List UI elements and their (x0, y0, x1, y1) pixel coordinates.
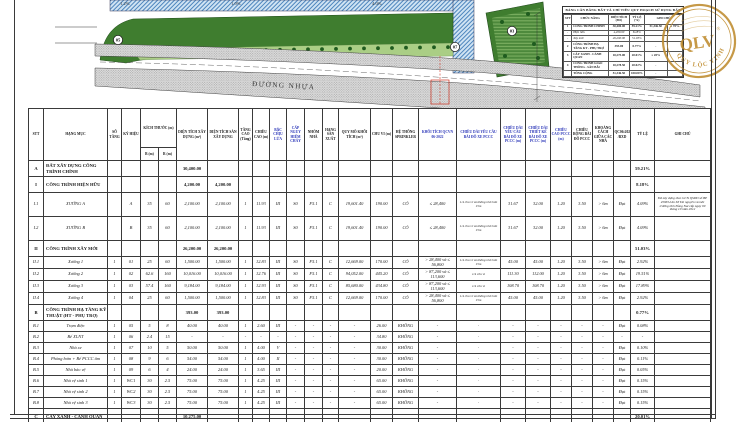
table-cell: KHÔNG (393, 332, 419, 343)
table-cell (122, 409, 141, 422)
table-cell: - (305, 354, 323, 365)
table-cell: 17.89% (631, 281, 655, 293)
table-cell (655, 376, 711, 387)
table-cell: KHÔNG (393, 365, 419, 376)
table-cell: Đạt (614, 269, 631, 281)
table-cell: 1 (108, 321, 122, 332)
land-balance-cell: 20.01% (629, 52, 644, 62)
table-cell: III (270, 321, 287, 332)
land-balance-cell: CÔNG TRÌNH GIAO THÔNG - SÂN BÃI (572, 61, 609, 71)
table-cell (457, 241, 501, 257)
col-cd-yeu-cau-rule: CHIỀU DÀI YÊU CẦU BÃI ĐỖ XE PCCC (457, 109, 501, 161)
table-cell: 10 (141, 343, 159, 354)
table-cell: - (551, 332, 572, 343)
table-cell: - (287, 365, 305, 376)
table-cell: 04 (122, 293, 141, 305)
table-cell: 1 (239, 376, 253, 387)
table-cell: 1.20 (551, 193, 572, 217)
table-cell: - (593, 321, 614, 332)
table-cell: 6 (159, 354, 177, 365)
table-cell: - (305, 321, 323, 332)
table-row: B.5Nhà bảo vệ1096424.0024.0013.65III----… (29, 365, 711, 376)
table-cell: 75.00 (177, 387, 208, 398)
table-cell: 26,200.00 (177, 241, 208, 257)
table-cell: - (287, 376, 305, 387)
table-cell: 2.5 (159, 376, 177, 387)
table-cell: Nhà vệ sinh 3 (44, 398, 108, 409)
table-row: AĐẤT XÂY DỰNG CÔNG TRÌNH CHÍNH30,400.005… (29, 161, 711, 177)
table-cell: II.4 (29, 293, 44, 305)
table-cell: 2,100.00 (177, 193, 208, 217)
table-cell (253, 161, 270, 177)
mini-col-ty-le: TỶ LỆ (%) (629, 15, 644, 25)
table-cell (501, 409, 526, 422)
land-balance-cell (667, 42, 682, 52)
table-cell (655, 293, 711, 305)
table-cell: - (572, 365, 593, 376)
sheet-frame-bottom-outer (10, 414, 716, 415)
table-cell (419, 305, 457, 321)
mini-col-ghi-chu: GHI CHÚ (645, 15, 683, 25)
table-cell (551, 241, 572, 257)
table-cell: 1 (108, 293, 122, 305)
table-cell: 32.00 (526, 217, 551, 241)
table-row: II.2Xưởng 210262.616010,016.0010,016.001… (29, 269, 711, 281)
table-cell: 65.00 (371, 398, 393, 409)
table-cell: - (526, 376, 551, 387)
table-cell: 45.00 (501, 257, 526, 269)
table-cell: III (270, 217, 287, 241)
table-cell (270, 177, 287, 193)
table-cell: - (287, 332, 305, 343)
table-cell: - (593, 376, 614, 387)
table-cell: - (457, 365, 501, 376)
land-balance-cell (667, 61, 682, 71)
table-cell: C (323, 269, 339, 281)
col-cd-thiet-ke: CHIỀU DÀI THIẾT KẾ BÃI ĐỖ XE PCCC (m) (526, 109, 551, 161)
table-cell: B.5 (29, 365, 44, 376)
table-cell (253, 305, 270, 321)
table-cell: - (501, 376, 526, 387)
col-stt: STT (29, 109, 44, 161)
table-cell: > 87,200 và ≤ 113,600 (419, 269, 457, 281)
table-cell: - (501, 398, 526, 409)
table-cell: - (572, 321, 593, 332)
table-cell (393, 409, 419, 422)
table-cell: 50.00 (208, 343, 239, 354)
table-cell: I.2 (29, 217, 44, 241)
table-cell: 02 (122, 269, 141, 281)
table-cell: C (323, 281, 339, 293)
col-nhom-nha: NHÓM NHÀ (305, 109, 323, 161)
table-cell: S0 (287, 217, 305, 241)
svg-text:05: 05 (116, 38, 121, 43)
table-cell: - (419, 332, 457, 343)
col-ky-hieu: KÝ HIỆU (122, 109, 141, 161)
table-cell: 1 (108, 269, 122, 281)
table-cell (239, 161, 253, 177)
table-cell: 75.00 (177, 376, 208, 387)
table-cell: 30,400.00 (177, 161, 208, 177)
table-cell (270, 409, 287, 422)
table-cell: - (457, 376, 501, 387)
table-cell: - (593, 343, 614, 354)
table-cell (457, 177, 501, 193)
table-cell: A (29, 161, 44, 177)
table-cell: B.4 (29, 354, 44, 365)
table-cell: F5.1 (305, 257, 323, 269)
table-cell: I.1 (29, 193, 44, 217)
col-dt-san: DIỆN TÍCH SÀN XÂY DỰNG (208, 109, 239, 161)
table-cell: 60 (159, 217, 177, 241)
table-cell: S0 (287, 193, 305, 217)
table-cell: - (305, 398, 323, 409)
table-cell: 1 (239, 321, 253, 332)
table-cell: CÔNG TRÌNH HẠ TẦNG KỸ THUẬT (HT - PHỤ TR… (44, 305, 108, 321)
table-cell (141, 161, 159, 177)
table-cell (339, 177, 371, 193)
table-cell: 24.00 (208, 365, 239, 376)
table-cell: 1 (239, 365, 253, 376)
table-cell (159, 305, 177, 321)
table-cell: - (572, 343, 593, 354)
table-cell (655, 281, 711, 293)
table-cell: Đạt (614, 281, 631, 293)
table-cell: CÓ (393, 269, 419, 281)
table-cell (572, 177, 593, 193)
table-cell: 12.83 (253, 293, 270, 305)
table-cell (253, 177, 270, 193)
table-cell: 1 (108, 387, 122, 398)
table-cell: Trạm điện (44, 321, 108, 332)
table-cell: 9 (141, 354, 159, 365)
land-balance-row: TỔNG CỘNG51,346.50100.00%- (564, 71, 683, 77)
table-cell: F5.1 (305, 193, 323, 217)
table-cell (655, 354, 711, 365)
col-qc-bxd: QC06:2022 /BXD (614, 109, 631, 161)
table-cell: III (270, 376, 287, 387)
table-cell (305, 409, 323, 422)
table-cell: - (551, 365, 572, 376)
table-cell: 25 (141, 293, 159, 305)
table-cell: - (457, 387, 501, 398)
table-cell: 108.70 (526, 281, 551, 293)
table-cell: 0.05% (631, 365, 655, 376)
table-row: B.3Nhà xe10710550.0050.0014.00V----30.00… (29, 343, 711, 354)
table-cell (339, 241, 371, 257)
land-balance-cell (667, 71, 682, 77)
table-row: II.3Xưởng 310357.41609,184.009,184.00112… (29, 281, 711, 293)
table-row: BCÔNG TRÌNH HẠ TẦNG KỸ THUẬT (HT - PHỤ T… (29, 305, 711, 321)
table-cell (551, 177, 572, 193)
building-statistics-table: STT HẠNG MỤC SỐ TẦNG KÝ HIỆU KÍCH THƯỚC … (28, 108, 711, 422)
table-row: ICÔNG TRÌNH HIỆN HỮU4,200.004,200.008.18… (29, 177, 711, 193)
col-sprinkler: HỆ THỐNG SPRINKLER (393, 109, 419, 161)
table-cell: 4.25 (253, 398, 270, 409)
table-cell: 75.00 (208, 387, 239, 398)
main-table-body: AĐẤT XÂY DỰNG CÔNG TRÌNH CHÍNH30,400.005… (29, 161, 711, 422)
table-cell (593, 305, 614, 321)
land-balance-cell: 4 (564, 61, 572, 71)
table-cell: > 6m (593, 217, 614, 241)
table-cell: 1.20 (551, 281, 572, 293)
table-cell (108, 161, 122, 177)
table-cell: Đạt (614, 293, 631, 305)
table-cell (122, 241, 141, 257)
table-cell: 1/4 chu vi và không nhỏ hơn 15m (457, 217, 501, 241)
table-cell: 4.00 (253, 354, 270, 365)
table-cell: 09 (122, 365, 141, 376)
table-cell: Xưởng 1 (44, 257, 108, 269)
table-cell: 1.20 (551, 217, 572, 241)
table-cell (655, 332, 711, 343)
table-cell: - (526, 354, 551, 365)
land-balance-cell: - (645, 42, 668, 52)
table-cell: 108.70 (501, 281, 526, 293)
table-cell: - (339, 332, 371, 343)
table-cell: - (177, 332, 208, 343)
table-cell: XƯỞNG B (44, 217, 108, 241)
table-cell (159, 161, 177, 177)
table-row: B.7Nhà vệ sinh 21WC2302.575.0075.0014.25… (29, 387, 711, 398)
table-cell: 1 (239, 217, 253, 241)
table-cell: 1 (239, 281, 253, 293)
table-cell: 0.10% (631, 343, 655, 354)
table-cell: III (270, 398, 287, 409)
table-cell: 06 (122, 332, 141, 343)
table-cell: - (457, 343, 501, 354)
table-cell: 6 (141, 365, 159, 376)
table-cell: - (419, 343, 457, 354)
col-bac-chiu-lua: BẬC CHỊU LỬA (270, 109, 287, 161)
table-cell: 2,100.00 (208, 217, 239, 241)
table-cell: 12,669.00 (339, 257, 371, 269)
table-cell: 160 (159, 269, 177, 281)
table-cell (239, 177, 253, 193)
table-cell: 4.09% (631, 193, 655, 217)
table-cell: - (501, 332, 526, 343)
col-dt-xay-dung: DIỆN TÍCH XÂY DỰNG (m²) (177, 109, 208, 161)
table-cell: 1/4 chu vi và không nhỏ hơn 15m (457, 293, 501, 305)
table-cell: 45.00 (526, 293, 551, 305)
table-cell: WC1 (122, 376, 141, 387)
table-cell: 31.67 (501, 193, 526, 217)
table-cell: - (526, 332, 551, 343)
slope-label: 1.2% (120, 1, 130, 6)
table-cell: - (572, 354, 593, 365)
table-cell: - (593, 354, 614, 365)
table-cell: 20.00 (371, 365, 393, 376)
table-cell: C (323, 293, 339, 305)
table-cell: 1 (239, 387, 253, 398)
table-cell: 12,669.00 (339, 293, 371, 305)
table-cell: - (614, 332, 631, 343)
table-cell: 2.5 (159, 387, 177, 398)
table-cell: 3.50 (572, 193, 593, 217)
table-cell: 20.01% (631, 409, 655, 422)
table-cell: 3.50 (572, 217, 593, 241)
table-cell: 3.50 (572, 257, 593, 269)
table-cell: 31.67 (501, 217, 526, 241)
table-cell: - (419, 354, 457, 365)
table-cell: 1 (108, 365, 122, 376)
table-cell: III (270, 257, 287, 269)
table-cell (614, 241, 631, 257)
table-cell: 1.20 (551, 257, 572, 269)
table-cell: 1,500.00 (208, 257, 239, 269)
table-cell: 12.76 (253, 269, 270, 281)
table-cell (108, 409, 122, 422)
table-row: I.1XƯỞNG AA35602,100.002,100.00111.93III… (29, 193, 711, 217)
table-cell: 1 (239, 398, 253, 409)
land-balance-cell: ≥ 20% (645, 52, 668, 62)
table-cell (270, 161, 287, 177)
table-cell: 1 (239, 269, 253, 281)
sheet-frame-right-inner (715, 0, 716, 419)
table-cell: 1/4 chu vi và không nhỏ hơn 15m (457, 257, 501, 269)
table-cell: 4,200.00 (208, 177, 239, 193)
table-cell (239, 241, 253, 257)
table-cell: B.3 (29, 343, 44, 354)
table-cell: - (572, 332, 593, 343)
table-cell: KHÔNG (393, 376, 419, 387)
table-row: IICÔNG TRÌNH XÂY MỚI26,200.0026,200.0051… (29, 241, 711, 257)
table-cell (159, 409, 177, 422)
table-cell: 1.20 (551, 269, 572, 281)
table-cell (323, 409, 339, 422)
table-cell: 32.00 (526, 193, 551, 217)
table-cell: 65.00 (371, 387, 393, 398)
land-balance-cell: 393.00 (609, 42, 630, 52)
table-cell (141, 305, 159, 321)
col-so-tang: SỐ TẦNG (108, 109, 122, 161)
table-cell: KHÔNG (393, 343, 419, 354)
table-cell: 75.00 (208, 376, 239, 387)
table-cell: 0.08% (631, 321, 655, 332)
table-cell: - (305, 332, 323, 343)
table-cell: B.6 (29, 376, 44, 387)
table-cell: - (593, 387, 614, 398)
table-cell: 62.6 (141, 269, 159, 281)
table-cell (572, 409, 593, 422)
land-balance-cell: TỔNG CỘNG (572, 71, 609, 77)
table-cell: 54.00 (177, 354, 208, 365)
table-cell: - (457, 321, 501, 332)
table-cell (655, 387, 711, 398)
table-row: B.1Trạm điện1055840.0040.0012.60III----2… (29, 321, 711, 332)
table-cell: - (323, 376, 339, 387)
table-cell: 19,601.40 (339, 217, 371, 241)
table-cell: > 6m (593, 269, 614, 281)
table-cell: 12.93 (253, 281, 270, 293)
table-cell: 19.51% (631, 269, 655, 281)
table-cell (655, 409, 711, 422)
table-cell (305, 161, 323, 177)
sheet-frame-bottom-inner (10, 418, 716, 419)
table-row: B.6Nhà vệ sinh 11WC1302.575.0075.0014.25… (29, 376, 711, 387)
table-cell (208, 161, 239, 177)
table-cell: S0 (287, 293, 305, 305)
table-cell: - (323, 398, 339, 409)
slope-label: 1.0% (231, 1, 241, 6)
land-balance-row: 2CÔNG TRÌNH HẠ TẦNG KT - PHỤ TRỢ393.000.… (564, 42, 683, 52)
table-cell (371, 161, 393, 177)
table-cell: II (270, 354, 287, 365)
table-cell (593, 177, 614, 193)
table-cell: CÓ (393, 193, 419, 217)
table-cell (593, 409, 614, 422)
table-cell (159, 177, 177, 193)
land-balance-table: BẢNG CÂN BẰNG ĐẤT VÀ CHỈ TIÊU QUY HOẠCH … (562, 6, 684, 78)
table-cell: - (631, 332, 655, 343)
col-chieu-rong-bai-do: CHIỀU RỘNG BÃI ĐỖ PCCC (572, 109, 593, 161)
table-cell: 26,200.00 (208, 241, 239, 257)
table-cell: 30 (141, 376, 159, 387)
table-cell (551, 409, 572, 422)
table-cell: 75.00 (208, 398, 239, 409)
table-cell: - (593, 332, 614, 343)
table-cell: 190.00 (371, 217, 393, 241)
table-cell: Đạt (614, 365, 631, 376)
col-chieu-cao: CHIỀU CAO (m) (253, 109, 270, 161)
table-cell: - (323, 365, 339, 376)
table-cell: - (419, 376, 457, 387)
table-cell (655, 269, 711, 281)
table-cell (270, 241, 287, 257)
table-cell: 0.15% (631, 398, 655, 409)
table-cell (141, 409, 159, 422)
table-row: I.2XƯỞNG BB35602,100.002,100.00111.93III… (29, 217, 711, 241)
table-cell: 19,601.40 (339, 193, 371, 217)
table-cell: - (572, 387, 593, 398)
table-cell: III (270, 365, 287, 376)
table-cell (572, 241, 593, 257)
table-cell: 34.80 (371, 332, 393, 343)
table-cell: 24.00 (177, 365, 208, 376)
table-cell (339, 161, 371, 177)
table-cell: 445.20 (371, 269, 393, 281)
table-cell: - (253, 332, 270, 343)
table-cell (371, 241, 393, 257)
table-cell (208, 409, 239, 422)
land-balance-cell: CÂY XANH - CẢNH QUAN (572, 52, 609, 62)
drawing-sheet: ĐƯỜNG NHỰA 1.2%1.0%4.0% 050703 BẢNG CÂN … (0, 0, 738, 422)
building-marker: 07 (450, 42, 459, 51)
table-cell: - (572, 376, 593, 387)
table-cell: 57.4 (141, 281, 159, 293)
table-cell: 65.00 (371, 376, 393, 387)
table-cell: - (526, 343, 551, 354)
table-cell: 3.50 (572, 269, 593, 281)
table-cell: C (323, 193, 339, 217)
table-cell: - (551, 376, 572, 387)
table-cell (419, 241, 457, 257)
table-cell: 30 (141, 387, 159, 398)
table-cell: - (305, 387, 323, 398)
land-balance-cell: - (645, 61, 668, 71)
table-cell: - (339, 343, 371, 354)
table-cell: A (122, 193, 141, 217)
table-cell: 50.00 (177, 343, 208, 354)
table-cell: - (526, 321, 551, 332)
table-cell: - (339, 365, 371, 376)
table-cell (614, 177, 631, 193)
table-cell: 11.93 (253, 217, 270, 241)
land-balance-cell: 0.77% (629, 42, 644, 52)
table-cell: - (270, 332, 287, 343)
table-cell (551, 305, 572, 321)
table-cell: 03 (122, 281, 141, 293)
